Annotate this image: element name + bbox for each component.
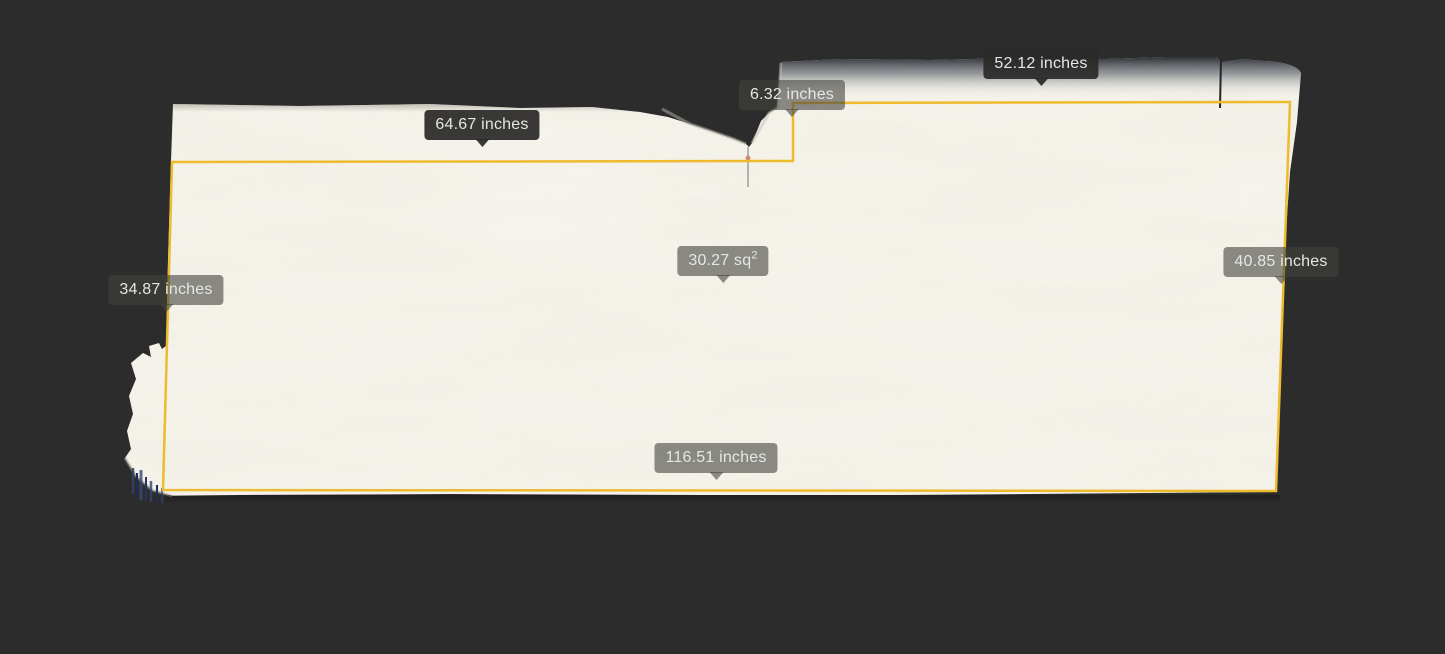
measurement-label-top-right-width[interactable]: 52.12 inches: [983, 49, 1098, 79]
label-arrow-down-icon: [475, 139, 489, 147]
label-arrow-down-icon: [785, 109, 799, 117]
measurement-label-top-left-width[interactable]: 64.67 inches: [424, 110, 539, 140]
measurement-label-right-height[interactable]: 40.85 inches: [1223, 247, 1338, 277]
slab-crack-marker-dot: [746, 156, 751, 161]
measurement-value: 6.32 inches: [750, 86, 834, 103]
measurement-label-bottom-width[interactable]: 116.51 inches: [654, 443, 777, 473]
measurement-value: 52.12 inches: [994, 55, 1087, 72]
slab-crack-top-right: [1220, 58, 1221, 108]
label-arrow-down-icon: [159, 304, 173, 312]
measurement-label-area[interactable]: 30.27 sq2: [677, 246, 768, 276]
label-arrow-down-icon: [1274, 276, 1288, 284]
measurement-value: 116.51 inches: [665, 449, 766, 466]
slab-drop-shadow: [165, 495, 1280, 504]
measurement-value: 64.67 inches: [435, 116, 528, 133]
label-arrow-down-icon: [716, 275, 730, 283]
measurement-label-step-height[interactable]: 6.32 inches: [739, 80, 845, 110]
slab-viewport[interactable]: [0, 0, 1445, 654]
label-arrow-down-icon: [709, 472, 723, 480]
measurement-value: 40.85 inches: [1234, 253, 1327, 270]
measurement-label-left-height[interactable]: 34.87 inches: [108, 275, 223, 305]
measurement-value: 34.87 inches: [119, 281, 212, 298]
measurement-canvas[interactable]: 64.67 inches 52.12 inches 6.32 inches 30…: [0, 0, 1445, 654]
measurement-value: 30.27 sq: [688, 252, 751, 269]
area-superscript: 2: [751, 250, 757, 262]
label-arrow-down-icon: [1034, 78, 1048, 86]
